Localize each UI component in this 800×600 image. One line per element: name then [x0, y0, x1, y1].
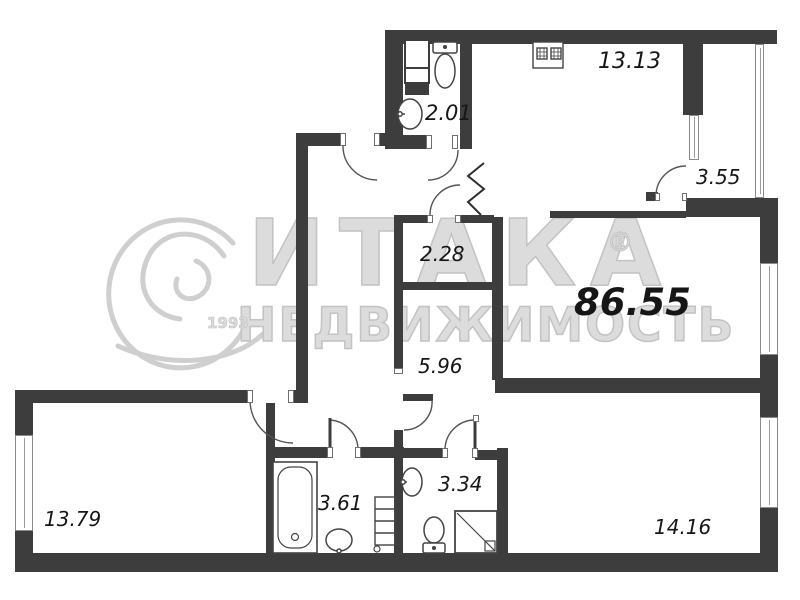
bathtub-icon — [273, 462, 317, 553]
vent-shaft-icon — [405, 40, 429, 83]
sink-icon — [399, 468, 422, 496]
door-jamb — [426, 135, 432, 149]
door-jamb — [288, 390, 294, 403]
door-arc — [250, 400, 293, 443]
area-label-corridor: 5.96 — [418, 354, 463, 378]
door-arc — [428, 150, 458, 180]
door-jamb — [427, 215, 433, 223]
door-jamb — [452, 135, 458, 149]
door-jamb — [455, 215, 461, 223]
shower-icon — [455, 511, 497, 553]
door-arc — [343, 146, 377, 180]
floor-plan: ИТАКА ® НЕДВИЖИМОСТЬ 1993 — [0, 0, 800, 600]
zigzag-break-icon — [468, 163, 484, 215]
door-jamb — [394, 368, 403, 374]
door-jamb — [327, 447, 333, 458]
door-jamb — [472, 448, 478, 458]
area-label-bathroom-top: 2.01 — [425, 101, 472, 125]
total-area-label: 86.55 — [574, 281, 691, 324]
door-jamb — [473, 415, 479, 422]
door-arc — [330, 420, 358, 450]
area-label-storage: 2.28 — [420, 242, 465, 266]
area-label-hallway-balcony: 3.55 — [696, 165, 741, 189]
faucet-icon — [374, 546, 380, 552]
toilet-icon — [423, 517, 445, 553]
door-arc — [404, 400, 432, 430]
stove-icon — [533, 42, 563, 68]
area-label-room-left: 13.79 — [44, 507, 101, 531]
door-jamb — [247, 390, 253, 403]
door-arc — [445, 420, 475, 450]
sink-icon — [326, 529, 352, 553]
door-jamb — [655, 193, 660, 201]
toilet-icon — [433, 42, 457, 88]
area-label-bathroom-bottom: 3.61 — [318, 491, 363, 515]
area-label-room-right: 14.16 — [654, 515, 711, 539]
door-arc — [430, 185, 460, 215]
door-jamb — [374, 133, 380, 146]
door-arc — [656, 166, 686, 196]
area-label-wc: 3.34 — [438, 472, 483, 496]
sink-icon — [396, 99, 422, 129]
door-jamb — [682, 193, 687, 201]
door-jamb — [340, 133, 346, 146]
area-label-kitchen-living: 13.13 — [598, 49, 661, 74]
door-jamb — [442, 448, 448, 458]
towel-rail-icon — [375, 497, 395, 545]
door-jamb — [355, 447, 361, 458]
